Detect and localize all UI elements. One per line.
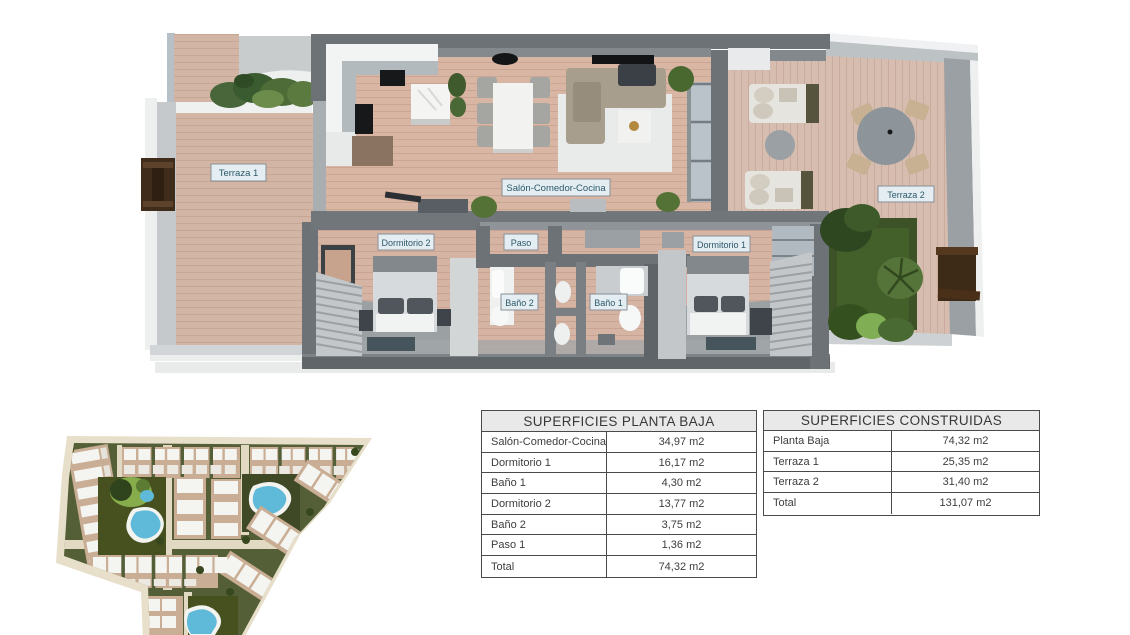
- svg-text:Salón-Comedor-Cocina: Salón-Comedor-Cocina: [506, 183, 606, 194]
- svg-text:Dormitorio 2: Dormitorio 2: [381, 238, 430, 248]
- svg-text:Dormitorio 1: Dormitorio 1: [697, 240, 746, 250]
- svg-text:Baño 1: Baño 1: [594, 298, 623, 308]
- svg-text:Baño 2: Baño 2: [505, 298, 534, 308]
- svg-text:Terraza 1: Terraza 1: [219, 168, 259, 179]
- svg-text:Paso: Paso: [511, 238, 532, 248]
- svg-text:Terraza 2: Terraza 2: [887, 190, 925, 200]
